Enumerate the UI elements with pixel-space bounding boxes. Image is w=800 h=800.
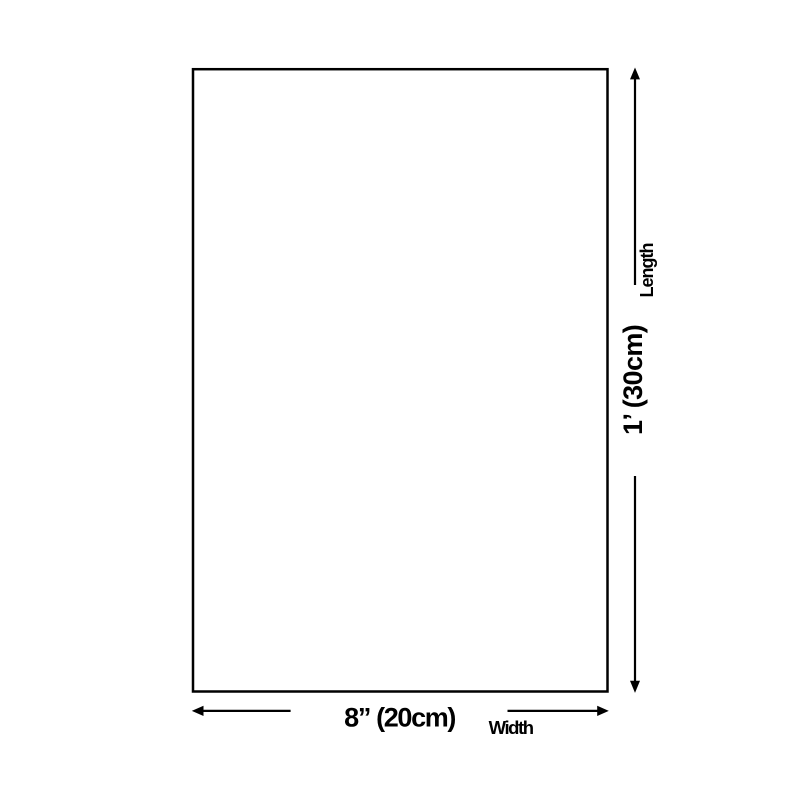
svg-text:1’ (30cm): 1’ (30cm): [618, 325, 648, 435]
svg-text:Length: Length: [637, 244, 657, 298]
svg-text:8” (20cm): 8” (20cm): [344, 703, 455, 733]
svg-text:Width: Width: [489, 717, 534, 738]
